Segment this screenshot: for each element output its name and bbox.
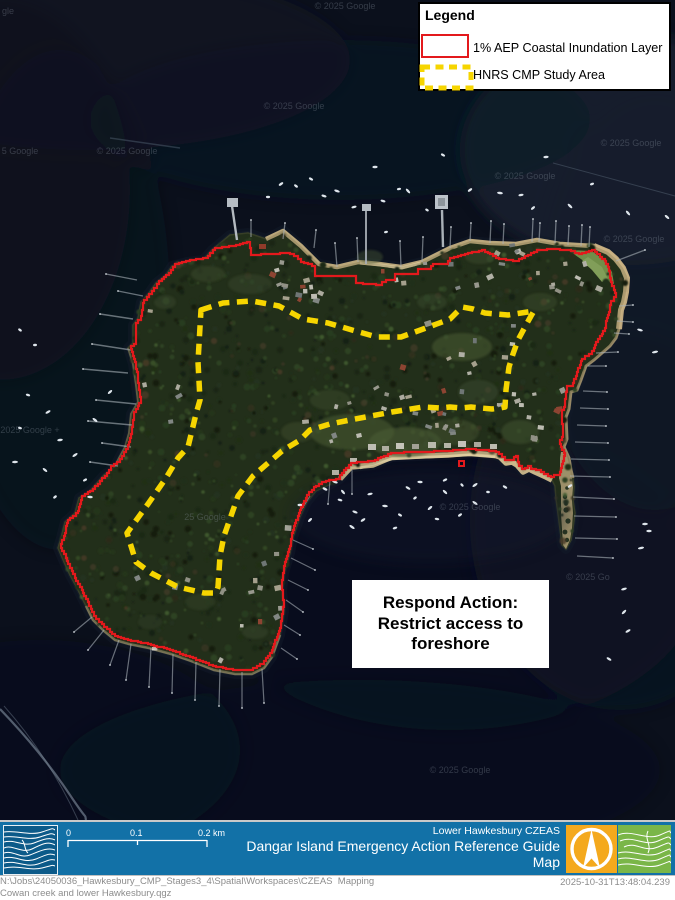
- svg-text:25 Google: 25 Google: [184, 512, 226, 522]
- svg-text:gle: gle: [2, 6, 14, 16]
- svg-text:© 2025 Google: © 2025 Google: [97, 146, 158, 156]
- svg-text:© 2025 Google: © 2025 Google: [604, 234, 665, 244]
- svg-text:© 2025 Google: © 2025 Google: [495, 171, 556, 181]
- svg-text:2025 Google +: 2025 Google +: [0, 425, 59, 435]
- svg-text:© 2025 Google: © 2025 Google: [601, 138, 662, 148]
- svg-text:© 2025 Google: © 2025 Google: [264, 101, 325, 111]
- svg-text:© 2025 Google: © 2025 Google: [430, 765, 491, 775]
- svg-text:© 2025 Google: © 2025 Google: [315, 1, 376, 11]
- svg-text:5 Google: 5 Google: [2, 146, 39, 156]
- svg-text:© 2025 Go: © 2025 Go: [566, 572, 610, 582]
- svg-text:© 2025 Google: © 2025 Google: [440, 502, 501, 512]
